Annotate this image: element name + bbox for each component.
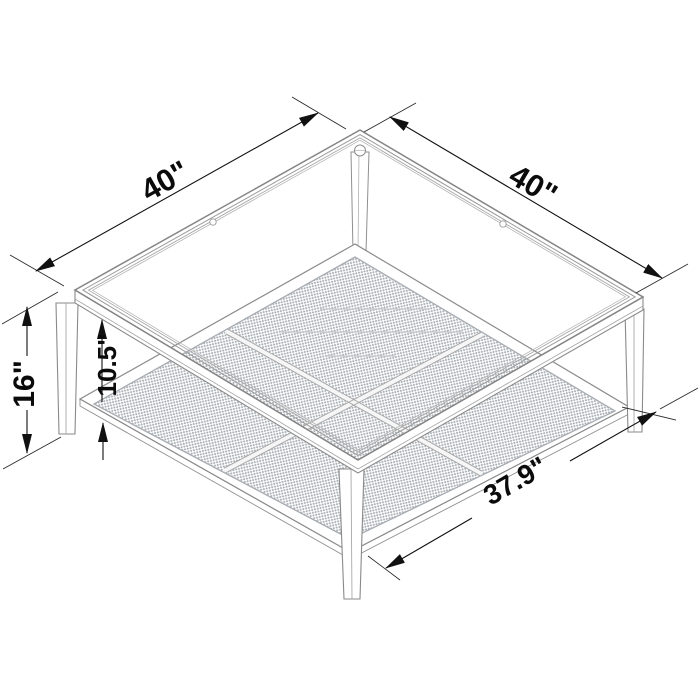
dim-label-top-right-40: 40" (503, 157, 563, 212)
dim-label-clearance-10-5: 10.5" (92, 334, 122, 397)
frame-joint-right (500, 221, 506, 227)
front-leg (339, 469, 364, 599)
dim-height-16: 16" (8, 307, 41, 453)
dim-clearance-10-5: 10.5" (92, 320, 122, 460)
dim-label-height-16: 16" (8, 360, 41, 408)
dim-label-top-left-40: 40" (135, 154, 195, 209)
dim-top-right-40: 40" (390, 117, 662, 278)
right-leg (625, 309, 644, 432)
dim-top-left-40: 40" (36, 113, 318, 271)
left-leg (56, 303, 78, 434)
frame-joint-left (210, 219, 216, 225)
table-dimension-diagram: 40" 40" 16" 10.5" 37.9" (0, 0, 700, 700)
back-leg (351, 145, 369, 252)
diagram-canvas: 40" 40" 16" 10.5" 37.9" (0, 0, 700, 700)
